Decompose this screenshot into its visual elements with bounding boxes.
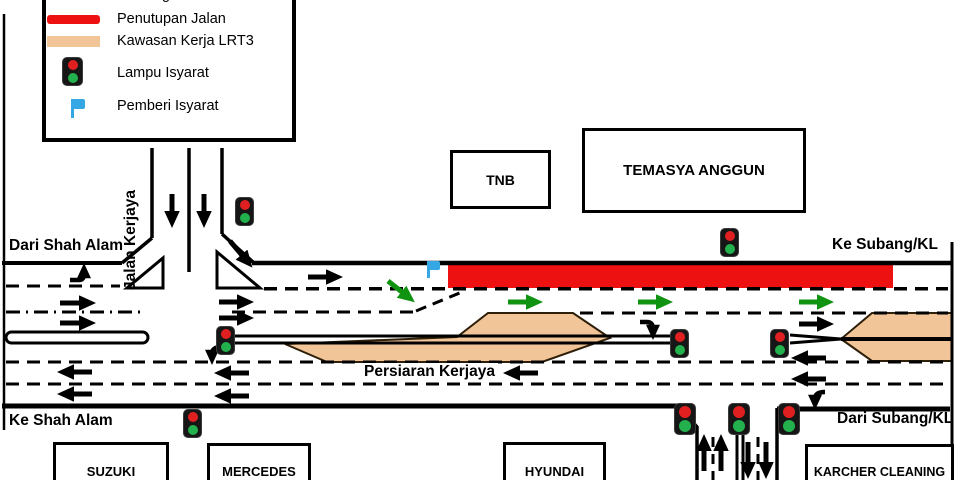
traffic-flow-arrows xyxy=(60,194,826,471)
legend-label-road-closure: Penutupan Jalan xyxy=(117,11,226,27)
flag-banner xyxy=(73,99,85,109)
green-lamp xyxy=(725,244,735,254)
red-lamp xyxy=(675,332,685,342)
merge-up-arrow xyxy=(70,272,84,280)
green-lamp xyxy=(679,420,691,432)
red-lamp xyxy=(725,231,735,241)
label-to-subang-kl: Ke Subang/KL xyxy=(832,236,938,254)
traffic-island-triangle-right xyxy=(217,252,260,288)
red-lamp xyxy=(240,200,250,210)
arrow-merge-southeast xyxy=(230,241,246,260)
red-lamp xyxy=(221,329,231,339)
building-mercedes: MERCEDES xyxy=(207,443,311,480)
label-to-shah-alam: Ke Shah Alam xyxy=(9,412,113,430)
legend-label-traffic-light: Lampu Isyarat xyxy=(117,65,209,81)
median-line-right-bottom xyxy=(790,339,841,343)
green-lamp xyxy=(675,345,685,355)
green-lamp xyxy=(775,345,785,355)
red-lamp xyxy=(68,60,78,70)
label-from-subang-kl: Dari Subang/KL xyxy=(837,410,953,428)
traffic-light-icon xyxy=(675,404,695,434)
red-lamp xyxy=(733,406,745,418)
traffic-management-diagram: Dari Shah Alam Ke Subang/KL Ke Shah Alam… xyxy=(0,0,960,480)
building-hyundai: HYUNDAI xyxy=(503,442,606,480)
building-suzuki: SUZUKI xyxy=(53,442,169,480)
red-lamp xyxy=(783,406,795,418)
building-temasya-anggun: TEMASYA ANGGUN xyxy=(582,128,806,213)
legend-swatch-work-area xyxy=(47,36,100,47)
flag-banner xyxy=(429,261,440,270)
u-turn-arrow-center-median xyxy=(640,322,653,331)
green-lamp xyxy=(68,73,78,83)
green-lamp xyxy=(783,420,795,432)
label-jalan-kerjaya: Jalan Kerjaya xyxy=(122,138,140,290)
red-lamp xyxy=(775,332,785,342)
lane-taper-line xyxy=(416,292,462,311)
red-lamp xyxy=(188,412,198,422)
traffic-light-icon xyxy=(217,327,234,354)
u-turn-arrow-southeast xyxy=(815,392,825,401)
traffic-light-icon xyxy=(721,229,738,256)
legend-swatch-road-closure xyxy=(47,15,100,24)
building-karcher-cleaning: KARCHER CLEANING xyxy=(805,444,954,480)
road-closure-bar xyxy=(448,263,893,288)
legend-label-flagman: Pemberi Isyarat xyxy=(117,98,219,114)
traffic-light-icon xyxy=(729,404,749,434)
legend-label-work-area: Kawasan Kerja LRT3 xyxy=(117,33,254,49)
legend-traffic-light-icon xyxy=(63,58,82,85)
traffic-light-icon xyxy=(771,330,788,357)
green-lamp xyxy=(221,342,231,352)
legend-clipped-text-fragment: g xyxy=(162,0,170,3)
traffic-light-icon xyxy=(184,410,201,437)
traffic-light-icon xyxy=(671,330,688,357)
green-lamp xyxy=(240,213,250,223)
label-from-shah-alam: Dari Shah Alam xyxy=(9,237,123,255)
median-island-pill xyxy=(6,332,148,343)
green-lamp xyxy=(188,425,198,435)
traffic-light-icon xyxy=(236,198,253,225)
red-lamp xyxy=(679,406,691,418)
traffic-light-icon xyxy=(779,404,799,434)
label-persiaran-kerjaya: Persiaran Kerjaya xyxy=(361,363,498,381)
building-tnb: TNB xyxy=(450,150,551,209)
green-lamp xyxy=(733,420,745,432)
